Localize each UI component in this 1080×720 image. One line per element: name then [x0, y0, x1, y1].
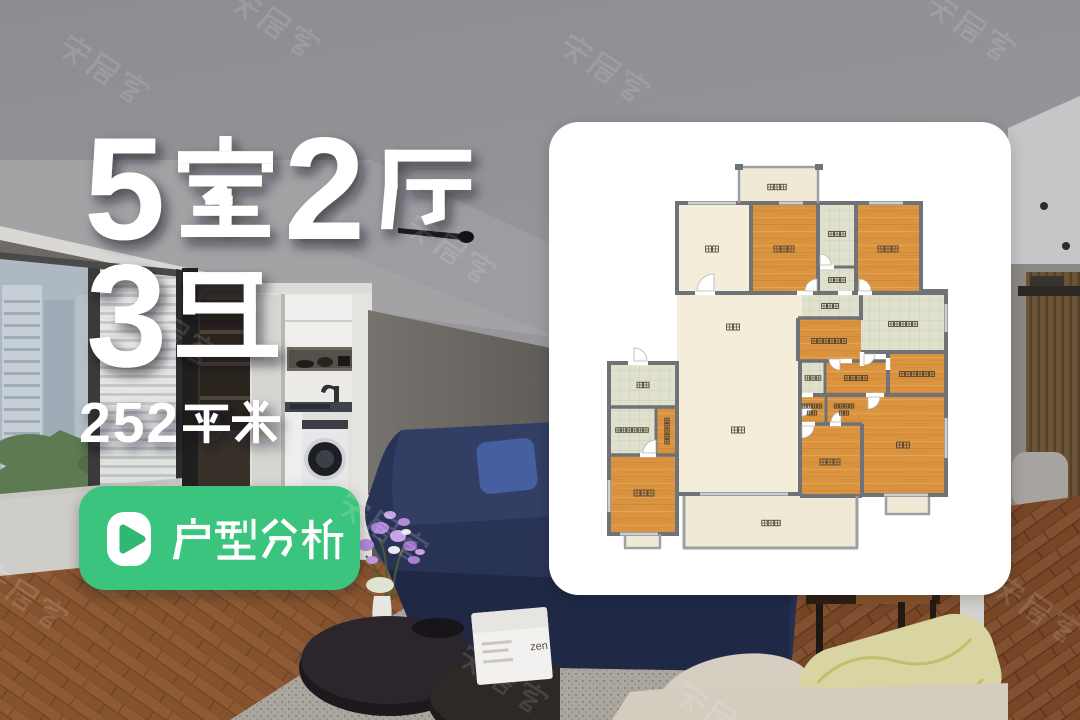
svg-text:252: 252 [79, 391, 180, 455]
svg-text:3: 3 [86, 234, 167, 397]
svg-text:2: 2 [284, 107, 365, 270]
